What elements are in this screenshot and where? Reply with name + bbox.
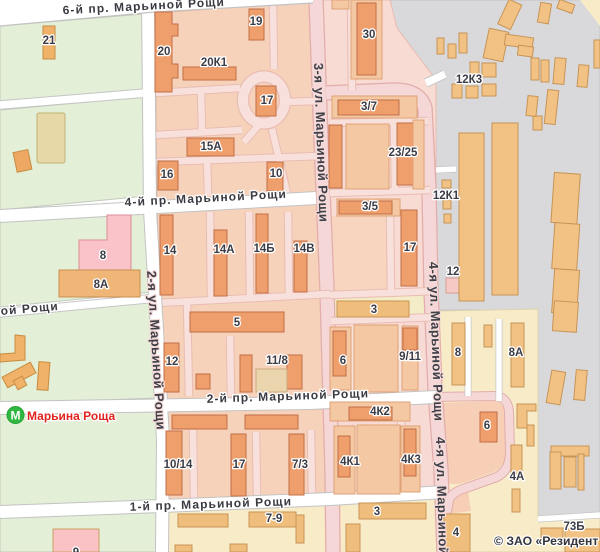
svg-text:4: 4 — [453, 527, 460, 539]
svg-text:30: 30 — [363, 29, 376, 41]
svg-text:17: 17 — [404, 242, 417, 254]
svg-text:3/7: 3/7 — [361, 101, 377, 113]
svg-text:9/11: 9/11 — [399, 351, 421, 363]
svg-text:4К3: 4К3 — [401, 454, 421, 466]
svg-text:М: М — [11, 409, 21, 423]
svg-text:3: 3 — [371, 304, 377, 316]
svg-text:11/8: 11/8 — [266, 355, 288, 367]
svg-text:4-я ул. Марьиной Рощи: 4-я ул. Марьиной Рощи — [433, 437, 452, 552]
svg-text:4К2: 4К2 — [370, 406, 390, 418]
svg-text:7-9: 7-9 — [266, 513, 283, 525]
svg-text:4А: 4А — [510, 471, 525, 483]
svg-text:14Б: 14Б — [253, 243, 274, 255]
svg-text:4К1: 4К1 — [340, 456, 360, 468]
svg-text:14А: 14А — [213, 244, 234, 256]
svg-text:6: 6 — [340, 355, 346, 367]
svg-text:15А: 15А — [200, 141, 221, 153]
svg-text:7/3: 7/3 — [292, 459, 308, 471]
svg-text:© ЗАО «Резидент: © ЗАО «Резидент — [494, 534, 598, 548]
svg-text:3: 3 — [374, 506, 380, 518]
svg-text:8А: 8А — [94, 279, 109, 291]
svg-text:12К3: 12К3 — [456, 74, 482, 86]
svg-text:12: 12 — [447, 266, 460, 278]
svg-text:20К1: 20К1 — [201, 57, 228, 69]
svg-text:12: 12 — [166, 356, 179, 368]
svg-text:19: 19 — [250, 16, 263, 28]
svg-text:8А: 8А — [509, 347, 524, 359]
svg-text:12К1: 12К1 — [433, 190, 460, 202]
svg-text:10/14: 10/14 — [164, 459, 193, 471]
svg-text:20: 20 — [158, 46, 171, 58]
svg-text:21: 21 — [43, 35, 56, 47]
svg-text:8: 8 — [100, 250, 107, 262]
svg-text:6: 6 — [484, 420, 490, 432]
svg-text:23/25: 23/25 — [389, 147, 418, 159]
svg-text:17: 17 — [233, 459, 246, 471]
svg-text:Марьина Роща: Марьина Роща — [27, 409, 115, 423]
svg-text:9: 9 — [73, 547, 79, 552]
svg-text:14В: 14В — [293, 243, 314, 255]
svg-text:73Б: 73Б — [563, 521, 584, 533]
svg-text:5: 5 — [234, 317, 241, 329]
svg-text:8: 8 — [455, 347, 462, 359]
svg-text:17: 17 — [261, 95, 274, 107]
svg-text:14: 14 — [164, 245, 177, 257]
svg-text:3/5: 3/5 — [362, 201, 379, 213]
svg-text:16: 16 — [161, 169, 174, 181]
svg-text:10: 10 — [270, 168, 283, 180]
